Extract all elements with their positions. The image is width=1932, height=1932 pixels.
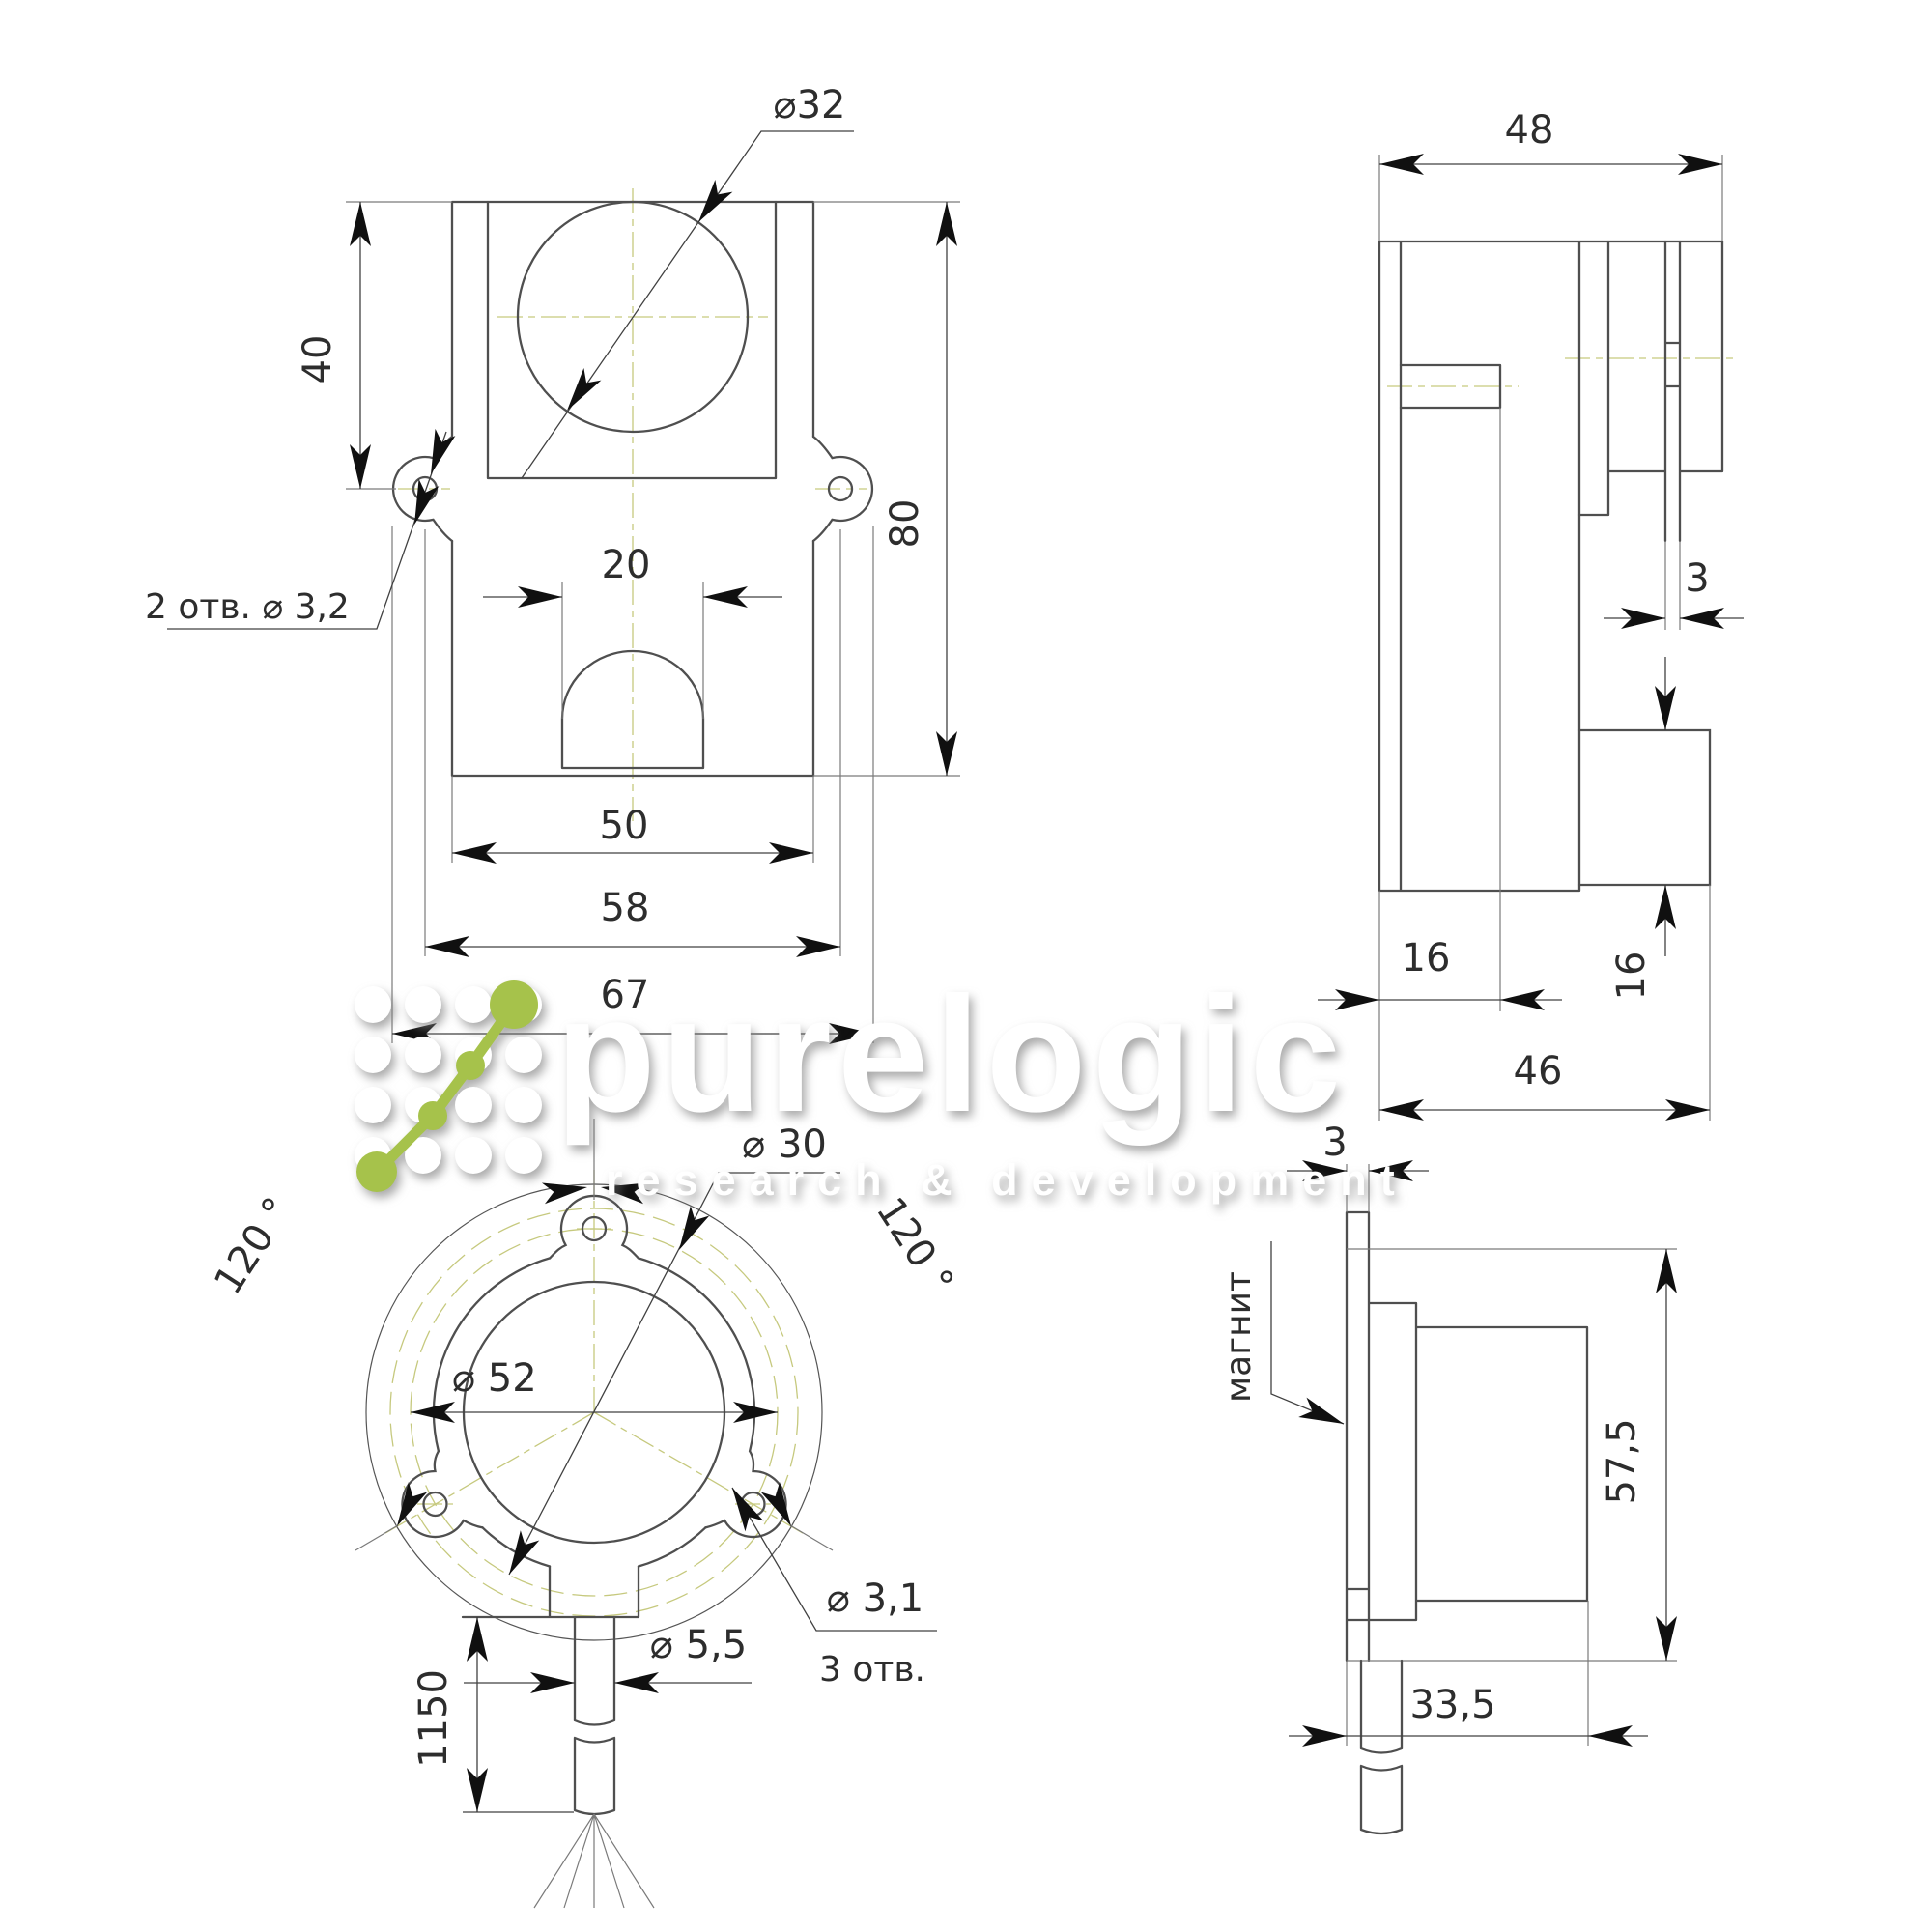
dim-40: 40 (296, 335, 340, 384)
dim-dia55: ⌀ 5,5 (650, 1623, 747, 1667)
note-3-holes: 3 отв. (819, 1650, 925, 1690)
angle-120-right: 120 ° (867, 1190, 962, 1303)
dim-dia52: ⌀ 52 (452, 1356, 537, 1401)
dim-58: 58 (601, 886, 650, 930)
front-view: 40 80 20 50 58 67 ⌀32 2 отв. ⌀ 3,2 (145, 83, 960, 1044)
note-2-holes: 2 отв. ⌀ 3,2 (145, 587, 350, 627)
dim-3-top: 3 (1685, 556, 1709, 601)
angle-120-left: 120 ° (206, 1190, 300, 1303)
dim-dia31: ⌀ 3,1 (827, 1577, 923, 1621)
drawing-page: { "watermark": { "brand": "purelogic", "… (0, 0, 1932, 1932)
brand-tagline: research & development (606, 1155, 1408, 1205)
dim-16-horiz: 16 (1402, 936, 1451, 980)
brand-wordmark: purelogic (555, 963, 1347, 1147)
dim-80: 80 (883, 499, 927, 549)
note-magnet: магнит (1219, 1271, 1259, 1403)
side-view-bottom: 3 магнит 57,5 33,5 (1219, 1121, 1677, 1833)
dim-1150: 1150 (412, 1669, 456, 1768)
flange-view: ⌀ 30 ⌀ 52 120 ° 120 ° ⌀ 3,1 3 отв. ⌀ 5,5… (206, 1119, 962, 1908)
dim-16-vert: 16 (1609, 952, 1654, 1001)
dim-46: 46 (1514, 1049, 1563, 1094)
technical-drawing: 40 80 20 50 58 67 ⌀32 2 отв. ⌀ 3,2 4 (0, 0, 1932, 1932)
cable-wires (534, 1814, 654, 1908)
dim-57-5: 57,5 (1600, 1418, 1644, 1504)
dim-dia32: ⌀32 (774, 83, 846, 128)
watermark: purelogic research & development (355, 963, 1408, 1205)
dim-50: 50 (600, 804, 649, 848)
dim-20: 20 (602, 543, 651, 587)
dim-33-5: 33,5 (1409, 1683, 1495, 1727)
dim-48: 48 (1505, 108, 1554, 153)
side-view-top: 48 3 16 16 46 (1318, 108, 1744, 1121)
